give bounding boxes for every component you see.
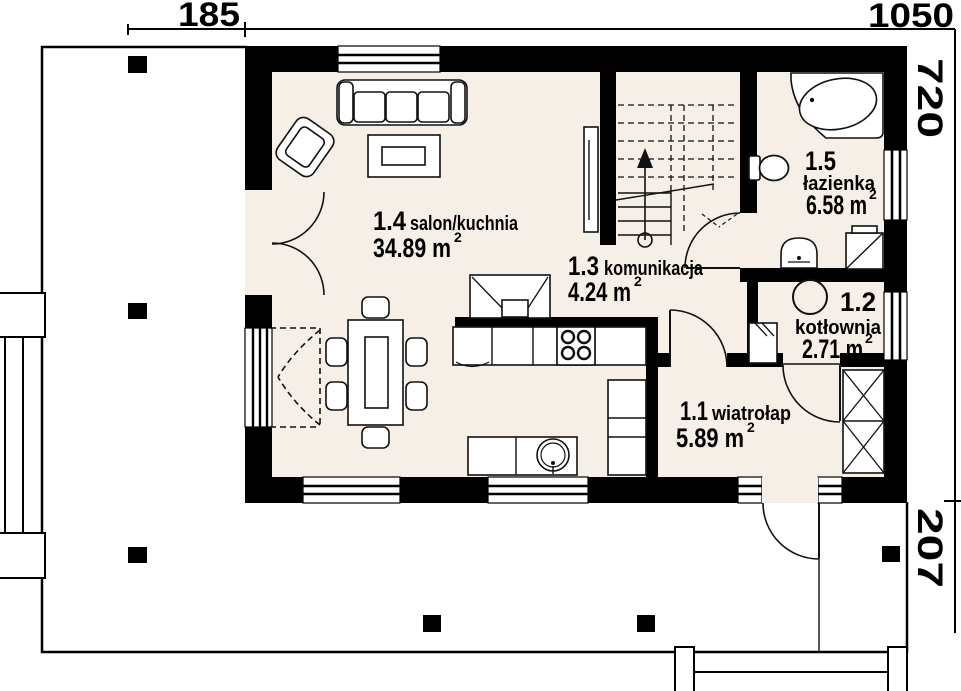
wall-hall-stub-right — [727, 353, 747, 367]
dimension-label-720: 720 — [910, 58, 949, 138]
floor-plan-page: 185 1050 720 207 — [0, 0, 961, 691]
dining-chair — [326, 338, 347, 366]
toilet — [749, 156, 789, 181]
dimension-label-207: 207 — [910, 508, 949, 588]
window-dining-west — [245, 328, 272, 427]
wardrobe — [843, 370, 884, 473]
wall-hall-stub-left — [658, 353, 670, 367]
post — [637, 615, 655, 632]
window-sidelight-right — [818, 477, 842, 503]
room-area: 34.89 m — [373, 233, 451, 263]
kitchen-counter-east — [608, 380, 646, 475]
floor-plan-drawing: 185 1050 720 207 — [0, 0, 961, 691]
post — [128, 547, 147, 563]
room-area-sup: 2 — [869, 186, 877, 202]
room-number: 1.5 — [805, 146, 836, 176]
room-area-sup: 2 — [865, 330, 873, 346]
wall-stair-left — [600, 72, 616, 245]
room-number: 1.1 — [680, 396, 708, 426]
tv-cabinet — [584, 127, 598, 232]
window-boiler-room — [884, 292, 907, 360]
room-number: 1.2 — [840, 287, 876, 317]
room-area: 4.24 m — [568, 277, 631, 307]
sofa — [337, 80, 467, 125]
dining-chair — [406, 382, 427, 410]
window-sidelight-left — [738, 477, 762, 503]
window-north-living — [338, 46, 440, 72]
bottom-exterior-steps — [675, 647, 907, 691]
room-area-sup: 2 — [747, 419, 755, 435]
post — [882, 546, 900, 562]
dining-chair — [362, 427, 389, 448]
window-bathroom — [884, 150, 907, 220]
room-area: 6.58 m — [806, 190, 867, 220]
dimension-label-1050: 1050 — [868, 0, 954, 35]
room-area-sup: 2 — [454, 229, 462, 245]
post — [128, 56, 147, 73]
entry-door — [762, 477, 819, 652]
coffee-table — [368, 135, 440, 177]
boiler-tank — [793, 280, 827, 314]
washing-machine — [846, 226, 883, 269]
dining-chair — [406, 338, 427, 366]
dining-chair — [326, 382, 347, 410]
room-number: 1.4 — [373, 206, 406, 236]
wall-stair-right — [740, 72, 757, 213]
washbasin — [781, 238, 817, 268]
window-south-kitchen — [488, 477, 588, 503]
dining-chair — [362, 297, 389, 318]
dining-table — [348, 320, 403, 425]
dimension-label-185: 185 — [178, 0, 240, 34]
room-area: 2.71 m — [802, 334, 863, 364]
bathtub-drain — [810, 98, 814, 102]
room-area-sup: 2 — [634, 273, 642, 289]
left-exterior-steps — [0, 293, 45, 578]
stove — [557, 327, 595, 365]
extractor-hood — [470, 275, 550, 318]
wall-bathroom-south — [740, 268, 907, 282]
wall-kitchen-east — [646, 327, 658, 477]
window-south-living — [303, 477, 400, 503]
room-area: 5.89 m — [676, 423, 744, 453]
post — [423, 615, 441, 632]
post — [128, 303, 147, 319]
furnace — [749, 323, 777, 363]
room-name: salon/kuchnia — [410, 213, 519, 235]
